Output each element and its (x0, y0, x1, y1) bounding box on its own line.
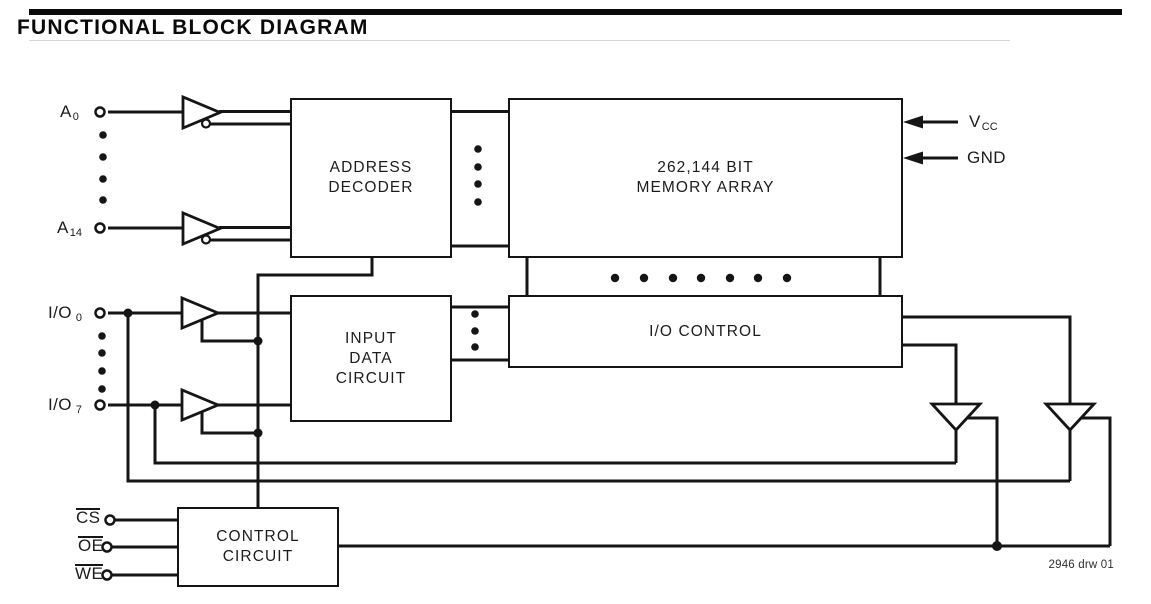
terminal-we (103, 571, 112, 580)
address-ellipsis-dot (99, 196, 107, 204)
input-data-circuit-label-line1: INPUT (336, 329, 407, 349)
pin-label-io0-sub: 0 (76, 312, 82, 324)
memory-array-label-line2: MEMORY ARRAY (636, 178, 774, 198)
pin-label-gnd-text: GND (967, 148, 1006, 167)
decoder-bus-ellipsis-dot (474, 145, 482, 153)
junction-dot (254, 337, 263, 346)
decoder-bus-ellipsis-dot (474, 180, 482, 188)
pin-label-vcc-base: V (969, 112, 981, 131)
pin-label-cs-text: CS (76, 508, 100, 526)
memory-bus-ellipsis-dot (726, 274, 734, 282)
pin-label-we: WE (75, 564, 103, 584)
inverter-bubble-a14-icon (202, 236, 210, 244)
wire-io0-buffer-gate (202, 320, 256, 341)
pin-label-io7: I/O7 (48, 395, 82, 415)
decoder-bus-ellipsis-dot (474, 163, 482, 171)
inputdata-bus-ellipsis-dot (471, 343, 479, 351)
input-data-circuit-block: INPUT DATA CIRCUIT (290, 295, 452, 422)
pin-label-a0-sub: 0 (73, 111, 79, 123)
address-ellipsis-dot (99, 175, 107, 183)
inputdata-bus-ellipsis-dot (471, 327, 479, 335)
junction-dot (254, 429, 263, 438)
address-ellipsis-dot (99, 131, 107, 139)
wire-iocontrol-to-left-output-buffer (903, 345, 956, 404)
functional-block-diagram: FUNCTIONAL BLOCK DIAGRAM (0, 0, 1151, 604)
terminal-cs (106, 516, 115, 525)
decoder-bus-ellipsis-dot (474, 198, 482, 206)
memory-bus-ellipsis-dot (611, 274, 619, 282)
pin-label-a14-sub: 14 (70, 227, 82, 239)
control-circuit-label-line2: CIRCUIT (216, 547, 299, 567)
pin-label-a14-base: A (57, 218, 69, 237)
junction-dot (151, 401, 160, 410)
memory-array-label-line1: 262,144 BIT (636, 158, 774, 178)
memory-bus-ellipsis-dot (754, 274, 762, 282)
junction-dot (992, 541, 1002, 551)
pin-label-io0-base: I/O (48, 303, 72, 322)
wire-iocontrol-to-right-output-buffer (903, 317, 1070, 404)
drawing-number: 2946 drw 01 (1034, 559, 1114, 571)
pin-label-oe-text: OE (78, 536, 103, 554)
pin-label-io0: I/O0 (48, 303, 82, 323)
pin-label-gnd: GND (967, 148, 1006, 168)
pin-label-io7-sub: 7 (76, 404, 82, 416)
input-buffer-io7-icon (182, 390, 218, 420)
io-ellipsis-dot (98, 332, 106, 340)
terminal-oe (103, 543, 112, 552)
pin-label-a0-base: A (60, 102, 72, 121)
arrowheads (903, 116, 923, 165)
address-decoder-label-line2: DECODER (328, 178, 413, 198)
terminal-a0 (96, 108, 105, 117)
control-circuit-label-line1: CONTROL (216, 527, 299, 547)
pin-label-oe: OE (78, 536, 103, 556)
pin-label-io7-base: I/O (48, 395, 72, 414)
input-data-circuit-label-line3: CIRCUIT (336, 369, 407, 389)
pin-label-cs: CS (76, 508, 100, 528)
memory-bus-ellipsis-dot (640, 274, 648, 282)
terminal-io7 (96, 401, 105, 410)
address-ellipsis-dot (99, 153, 107, 161)
pin-label-vcc: VCC (969, 112, 998, 132)
input-data-circuit-label: INPUT DATA CIRCUIT (336, 329, 407, 389)
memory-bus-ellipsis-dot (669, 274, 677, 282)
junction-dot (124, 309, 133, 318)
wire-right-output-buffer-enable (1081, 418, 1110, 546)
terminal-a14 (96, 224, 105, 233)
pin-label-vcc-sub: CC (982, 121, 998, 133)
memory-bus-ellipsis-dot (697, 274, 705, 282)
address-decoder-block: ADDRESS DECODER (290, 98, 452, 258)
pin-label-a0: A0 (60, 102, 79, 122)
input-data-circuit-label-line2: DATA (336, 349, 407, 369)
io-control-block: I/O CONTROL (508, 295, 903, 368)
io-control-label: I/O CONTROL (649, 322, 762, 342)
io-ellipsis-dot (98, 349, 106, 357)
pin-label-we-text: WE (75, 564, 103, 582)
control-circuit-block: CONTROL CIRCUIT (177, 507, 339, 587)
io-ellipsis-dot (98, 385, 106, 393)
wire-io7-feedback (155, 405, 956, 463)
inputdata-bus-ellipsis-dot (471, 310, 479, 318)
pin-label-a14: A14 (57, 218, 82, 238)
input-buffer-io0-icon (182, 298, 218, 328)
memory-bus-ellipsis-dot (783, 274, 791, 282)
terminal-io0 (96, 309, 105, 318)
control-circuit-label: CONTROL CIRCUIT (216, 527, 299, 567)
io-ellipsis-dot (98, 367, 106, 375)
wire-io7-buffer-gate (202, 412, 256, 433)
vcc-arrow-icon (903, 116, 923, 129)
memory-array-block: 262,144 BIT MEMORY ARRAY (508, 98, 903, 258)
memory-array-label: 262,144 BIT MEMORY ARRAY (636, 158, 774, 198)
address-decoder-label-line1: ADDRESS (328, 158, 413, 178)
gnd-arrow-icon (903, 152, 923, 165)
address-decoder-label: ADDRESS DECODER (328, 158, 413, 198)
inverter-bubble-a0-icon (202, 120, 210, 128)
